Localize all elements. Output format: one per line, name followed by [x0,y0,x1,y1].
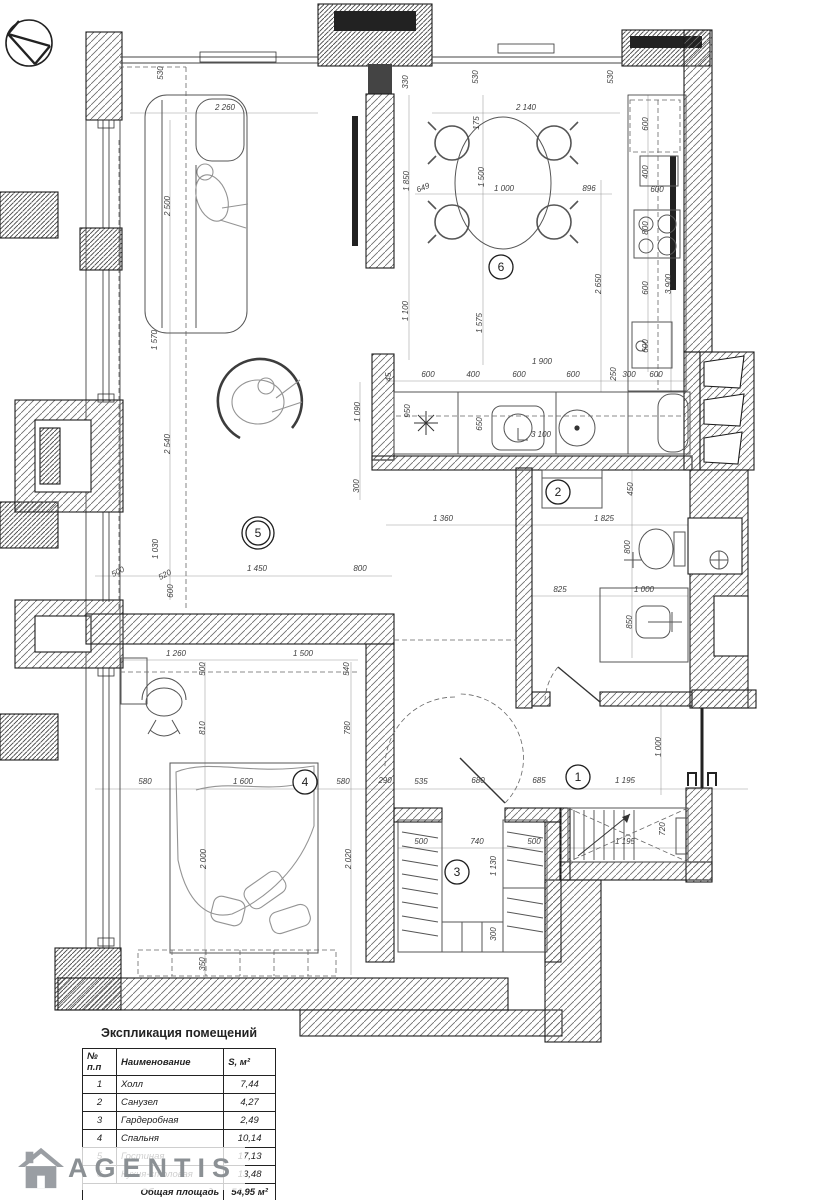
dimension-label: 535 [414,777,428,786]
dimension-label: 2 020 [344,848,353,870]
kitchen-counter [394,392,690,454]
svg-text:6: 6 [498,260,505,274]
dimension-label: 1 000 [654,736,663,757]
vanity-sink [600,588,688,662]
dimension-label: 2 500 [163,195,172,217]
kitchen-wall-units [628,95,686,391]
water-heater [710,551,728,569]
sofa [145,95,247,333]
dimension-label: 2 540 [163,433,172,455]
schedule-row: 3Гардеробная2,49 [83,1112,276,1130]
dimension-label: 800 [623,540,632,554]
dimension-label: 685 [532,776,546,785]
dimension-label: 1 360 [433,514,454,523]
dimension-label: 45 [384,372,393,381]
dimension-label: 540 [342,662,351,676]
svg-text:4: 4 [302,775,309,789]
dimension-label: 1 090 [353,401,362,422]
tv-kitchen [670,156,676,290]
dimension-label: 600 [641,281,650,295]
room-markers: 123456 [242,255,590,884]
room-marker: 5 [242,517,274,549]
dimension-label: 1 195 [615,837,636,846]
dimension-label: 580 [336,777,350,786]
dimension-label: 300 [489,927,498,941]
dimension-label: 780 [343,721,352,735]
entry-door [688,708,716,788]
dimension-label: 300 [622,370,636,379]
dimension-label: 2 140 [515,103,537,112]
dimension-label: 600 [166,584,175,598]
floorplan-page: 5302 2602 5001 5702 5401 0305005206001 4… [0,0,823,1200]
dimension-label: 530 [156,66,165,80]
dimension-label: 600 [649,370,663,379]
room-marker: 6 [489,255,513,279]
dimension-label: 1 600 [233,777,254,786]
dimension-label: 450 [626,482,635,496]
dimension-label: 1 825 [594,514,615,523]
dimension-label: 1 195 [615,776,636,785]
dimension-label: 530 [471,70,480,84]
plan-svg: 5302 2602 5001 5702 5401 0305005206001 4… [0,0,823,1200]
schedule-title: Экспликация помещений [82,1026,276,1040]
dresser [121,658,147,704]
dimension-label: 1 000 [494,184,515,193]
dimension-label: 400 [466,370,480,379]
dimension-label: 400 [641,165,650,179]
dimension-label: 350 [198,957,207,971]
svg-text:5: 5 [255,526,262,540]
dimension-label: 600 [566,370,580,379]
dimension-label: 850 [625,615,634,629]
room-marker: 3 [445,860,469,884]
dimension-label: 500 [198,662,207,676]
agentis-logo: AGENTIS [18,1144,245,1192]
dimension-label: 1 900 [532,357,553,366]
dimension-label: 650 [475,417,484,431]
svg-text:1: 1 [575,770,582,784]
dimension-label: 1 500 [293,649,314,658]
room-marker: 1 [566,765,590,789]
dimension-label: 2 650 [594,273,603,295]
dimension-label: 896 [582,184,596,193]
dimension-label: 1 100 [401,300,410,321]
walls-layer [0,4,756,1042]
dimension-label: 740 [470,837,484,846]
dimension-label: 600 [421,370,435,379]
house-icon [18,1144,64,1192]
dimension-label: 2 000 [199,848,208,870]
col-area: S, м² [224,1049,276,1076]
dimension-label: 1 500 [477,166,486,187]
tv-living [352,116,358,246]
dimension-label: 3 900 [664,273,673,294]
person-sitting [190,164,248,228]
bed [170,763,318,953]
stairs [568,808,688,862]
north-arrow-icon [6,20,52,66]
dimension-label: 680 [471,776,485,785]
dimension-label: 500 [527,837,541,846]
dimension-label: 800 [641,221,650,235]
dimension-label: 810 [198,721,207,735]
schedule-row: 2Санузел4,27 [83,1094,276,1112]
brand-name: AGENTIS [64,1147,245,1190]
dimension-label: 1 450 [247,564,268,573]
schedule-header-row: № п.п Наименование S, м² [83,1049,276,1076]
svg-text:3: 3 [454,865,461,879]
col-name: Наименование [117,1049,224,1076]
dining-set [428,117,578,249]
dimension-label: 1 575 [475,312,484,333]
dimension-label: 720 [658,822,667,836]
dimension-label: 290 [377,776,392,785]
dimension-label: 649 [415,181,431,195]
col-number: № п.п [83,1049,117,1076]
dimension-label: 1 260 [166,649,187,658]
dimension-label: 3 100 [531,430,552,439]
dimension-label: 950 [403,404,412,418]
dimension-label: 300 [352,479,361,493]
svg-text:2: 2 [555,485,562,499]
stool [142,678,186,736]
dimension-label: 520 [157,567,173,581]
bedroom-furniture [120,658,358,976]
dimension-label: 530 [606,70,615,84]
dimension-label: 825 [553,585,567,594]
dimension-label: 175 [472,116,481,130]
dimension-label: 330 [401,75,410,89]
bathroom-door-leaf [558,667,600,702]
dimension-label: 250 [609,367,618,382]
dimension-label: 580 [138,777,152,786]
dimension-label: 500 [414,837,428,846]
dimension-label: 500 [110,564,126,578]
dimension-label: 600 [650,185,664,194]
schedule-row: 1Холл7,44 [83,1076,276,1094]
dimension-label: 1 570 [150,329,159,350]
dimension-label: 2 260 [214,103,236,112]
dimension-label: 600 [641,339,650,353]
armchair [218,359,302,438]
dimension-label: 1 030 [151,538,160,559]
room-marker: 4 [293,770,317,794]
dimension-label: 600 [512,370,526,379]
dimension-label: 800 [353,564,367,573]
dimension-label: 600 [641,117,650,131]
dimension-label: 1 000 [634,585,655,594]
freezer-symbol [414,411,438,435]
dimension-label: 1 850 [402,170,411,191]
dimension-label: 1 130 [489,855,498,876]
room-marker: 2 [546,480,570,504]
toilet [624,529,685,569]
